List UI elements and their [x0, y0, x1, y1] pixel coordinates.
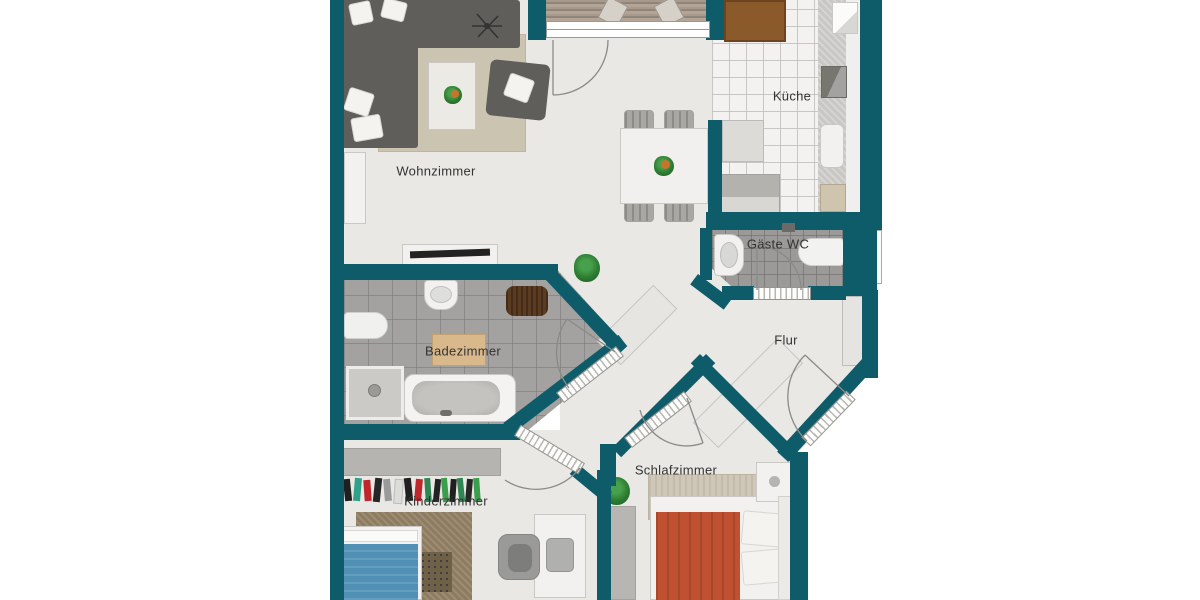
desk-chair-seat: [508, 544, 532, 572]
wall-wc-bottom-left: [722, 286, 754, 300]
room-label-schlafzimmer: Schlafzimmer: [635, 463, 717, 478]
kitchen-table: [724, 0, 786, 42]
kitchen-appliance: [820, 184, 846, 212]
wall-bath-top: [344, 264, 558, 280]
floor-plan: Wohnzimmer Küche Gäste WC Flur Badezimme…: [0, 0, 1200, 600]
kids-bed-blanket: [340, 544, 418, 600]
room-label-flur: Flur: [774, 333, 798, 348]
nightstand-knob-icon: [769, 476, 780, 487]
wall-outer-right-top: [860, 0, 882, 230]
wc-door: [753, 287, 811, 300]
balcony-deck: [546, 0, 710, 22]
hall-wardrobe-east: [842, 296, 864, 366]
wall-kinder-schlaf-divider: [597, 470, 611, 600]
room-label-gaeste-wc: Gäste WC: [747, 237, 809, 252]
bath-rug-brown: [506, 286, 548, 316]
bathtub-faucet-icon: [440, 410, 452, 416]
bath-sink-basin: [430, 286, 452, 303]
wall-wc-bottom-right: [808, 286, 846, 300]
balcony-window-door: [546, 21, 710, 38]
desk-laptop: [546, 538, 574, 572]
kitchen-sink: [820, 124, 844, 168]
sofa-pillow: [350, 114, 384, 143]
wc-sink-basin: [720, 242, 738, 268]
kitchen-counter-bottom: [718, 174, 780, 214]
wall-outer-right-bottom: [790, 452, 808, 600]
wc-wall-box: [782, 223, 795, 232]
bath-toilet: [344, 312, 388, 339]
hall-plant-icon: [574, 254, 600, 282]
sideboard-left-wall: [344, 152, 366, 224]
room-label-badezimmer: Badezimmer: [425, 344, 501, 359]
bed-blanket-orange: [656, 512, 740, 600]
kitchen-cabinet-left: [722, 120, 764, 162]
dining-centerpiece-fruit: [661, 160, 670, 169]
room-label-kinderzimmer: Kinderzimmer: [404, 494, 488, 509]
room-label-kueche: Küche: [773, 89, 811, 104]
stove: [821, 66, 847, 98]
wall-balcony-pier-left: [528, 0, 546, 40]
table-plant-fruit: [451, 90, 459, 98]
bathtub-basin: [412, 381, 500, 415]
kids-bed-pillow: [340, 530, 418, 542]
shower-head-icon: [368, 384, 381, 397]
sofa-pillow: [348, 0, 374, 26]
wall-bath-bottom: [330, 424, 520, 440]
kids-closet-shelf: [333, 448, 501, 476]
wall-wc-left: [700, 228, 712, 280]
wall-outer-left: [330, 0, 344, 600]
wall-wc-right: [843, 212, 877, 296]
wall-kitchen-left: [708, 120, 722, 222]
fridge: [832, 2, 858, 34]
room-label-wohnzimmer: Wohnzimmer: [396, 164, 475, 179]
